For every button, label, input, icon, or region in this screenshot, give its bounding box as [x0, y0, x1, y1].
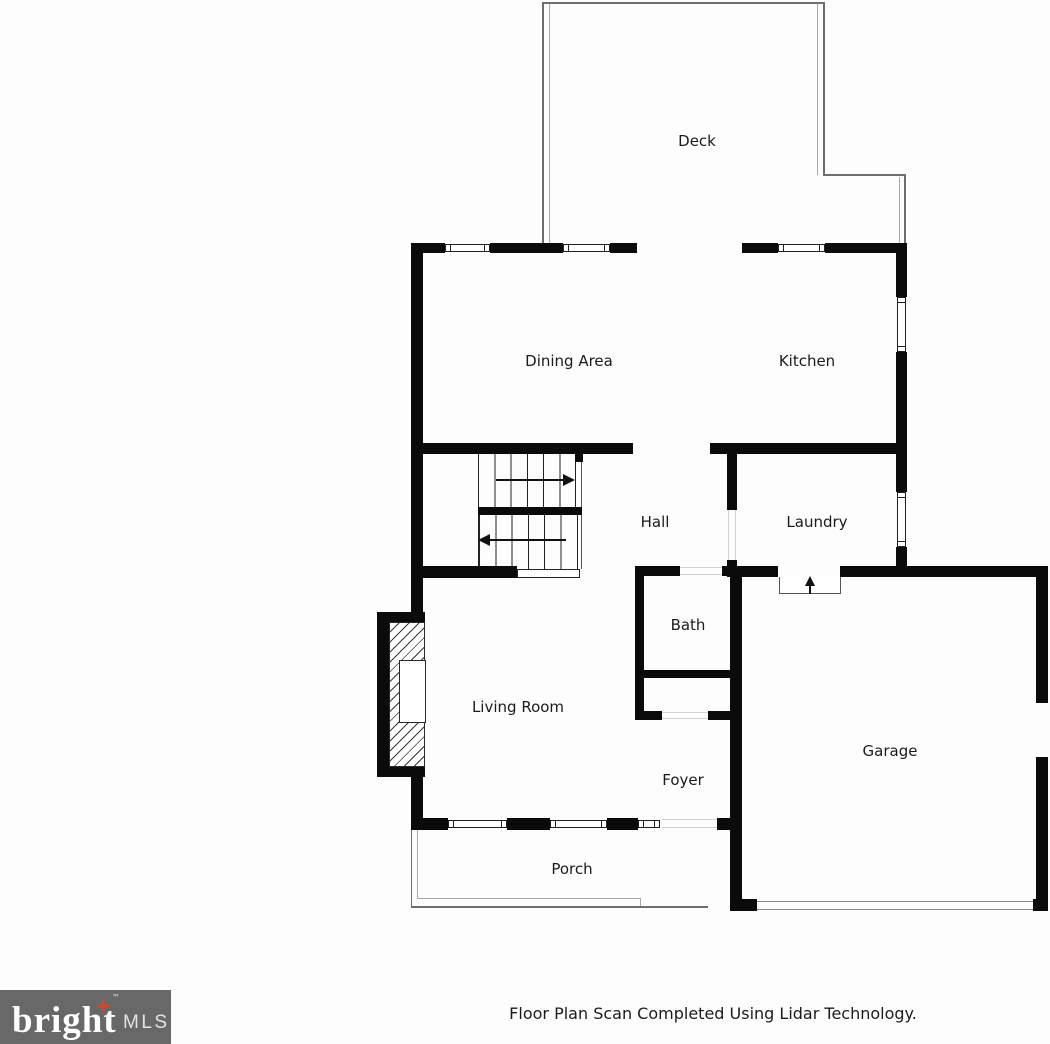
deck-outline-right: [823, 2, 825, 176]
step-up-arrow-icon: [805, 576, 815, 586]
window: [638, 820, 660, 828]
wall-segment: [635, 670, 730, 678]
deck-outline-top: [542, 2, 825, 4]
wall-segment: [635, 566, 644, 720]
garage-door-line: [757, 909, 1033, 910]
window-mullion: [484, 244, 485, 252]
wall-segment: [423, 566, 517, 578]
window: [778, 244, 825, 252]
step-arrow-line: [809, 585, 811, 594]
stairs-down-arrow-line: [490, 539, 566, 541]
stairwell-edge: [581, 462, 582, 507]
wall-segment: [635, 711, 662, 720]
wall-segment: [610, 243, 637, 253]
window: [897, 297, 906, 352]
wall-segment: [896, 243, 907, 297]
porch-rail-bottom: [417, 898, 640, 899]
wall-segment: [411, 818, 448, 830]
fireplace-wall-bottom: [377, 767, 425, 777]
window-mullion: [897, 302, 906, 303]
wall-segment: [840, 566, 1048, 577]
room-label-dining: Dining Area: [525, 352, 613, 370]
window-mullion: [897, 497, 906, 498]
wall-segment: [490, 243, 563, 253]
wall-segment: [717, 818, 730, 830]
wall-segment: [1033, 899, 1048, 911]
room-label-porch: Porch: [551, 860, 592, 878]
window-mullion: [555, 820, 556, 828]
wall-segment: [825, 243, 907, 253]
deck-outline-left: [542, 2, 544, 243]
window: [563, 244, 610, 252]
room-label-bath: Bath: [671, 616, 706, 634]
stairwell-edge: [581, 515, 582, 569]
closet-door-line: [662, 718, 708, 719]
garage-door-line: [757, 901, 1033, 902]
stairs-up-arrow-line: [496, 479, 564, 481]
window-mullion: [568, 244, 569, 252]
window-mullion: [897, 346, 906, 347]
wall-segment: [742, 243, 778, 253]
room-label-hall: Hall: [641, 513, 670, 531]
bath-door-line: [680, 567, 722, 568]
room-label-foyer: Foyer: [662, 771, 704, 789]
window-mullion: [501, 820, 502, 828]
wall-segment: [896, 352, 907, 492]
stair-landing-wall: [478, 507, 582, 515]
window-mullion: [604, 244, 605, 252]
room-label-living: Living Room: [472, 698, 564, 716]
wall-segment: [708, 711, 730, 720]
laundry-door-line: [735, 510, 736, 560]
wall-segment: [411, 243, 423, 612]
laundry-door-line: [728, 510, 729, 560]
stairs-down-arrow-icon: [478, 534, 490, 546]
deck-extension-right: [904, 174, 906, 244]
stair-wall-stub: [575, 453, 583, 462]
porch-rail-left: [417, 830, 418, 899]
window: [550, 820, 607, 828]
stairs-lower-flight: [478, 515, 578, 569]
wall-segment: [730, 899, 757, 911]
wall-segment: [507, 818, 550, 830]
window: [445, 244, 490, 252]
room-label-garage: Garage: [863, 742, 918, 760]
room-label-deck: Deck: [678, 132, 716, 150]
front-door-line: [662, 819, 717, 820]
wall-segment: [607, 818, 638, 830]
window-mullion: [643, 820, 644, 828]
wall-segment: [730, 566, 742, 911]
stair-base-landing: [517, 569, 580, 578]
porch-outline-left: [411, 830, 412, 908]
window-mullion: [450, 244, 451, 252]
window-mullion: [897, 541, 906, 542]
brightmls-logo: bright ™ MLS: [0, 990, 171, 1044]
fireplace-firebox: [399, 660, 426, 723]
window-mullion: [453, 820, 454, 828]
window-mullion: [819, 244, 820, 252]
brightmls-logo-suffix: MLS: [123, 1012, 170, 1034]
deck-extension-rail: [899, 177, 900, 244]
porch-outline-bottom: [411, 906, 708, 908]
fireplace-wall-top: [377, 612, 425, 622]
wall-segment: [722, 566, 728, 576]
wall-segment: [710, 443, 907, 454]
window-mullion: [654, 820, 655, 828]
window-mullion: [783, 244, 784, 252]
room-label-laundry: Laundry: [786, 513, 847, 531]
front-door-line: [662, 827, 717, 828]
bath-door-line: [680, 574, 722, 575]
deck-rail-right: [817, 4, 818, 175]
window-mullion: [601, 820, 602, 828]
room-label-kitchen: Kitchen: [779, 352, 835, 370]
wall-segment: [1036, 566, 1048, 703]
footer-caption: Floor Plan Scan Completed Using Lidar Te…: [509, 1004, 917, 1023]
window: [897, 492, 906, 547]
brightmls-trademark: ™: [112, 993, 120, 1002]
deck-extension-top: [823, 174, 906, 176]
fireplace-wall-left: [377, 612, 389, 777]
floor-plan: Deck Dining Area Kitchen Hall Laundry Ba…: [0, 0, 1050, 1044]
wall-segment: [1036, 757, 1048, 911]
stairs-up-arrow-icon: [563, 474, 575, 486]
closet-door-line: [662, 712, 708, 713]
wall-segment: [727, 454, 737, 510]
window: [448, 820, 507, 828]
wall-segment: [737, 566, 778, 577]
deck-rail-left: [549, 3, 550, 243]
